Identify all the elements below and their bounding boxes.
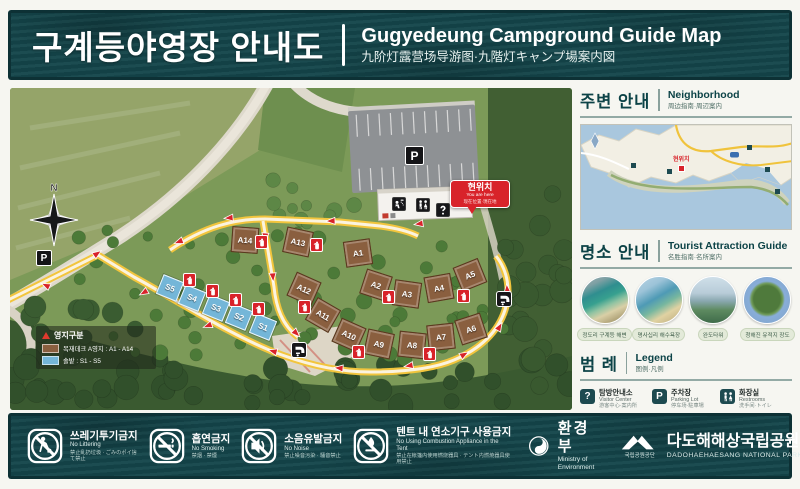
attractions-title-en: Tourist Attraction Guide xyxy=(668,241,788,253)
parking-badge: P xyxy=(36,250,52,266)
you-are-here-balloon: 현위치 You are here 现在位置·現在地 xyxy=(450,180,510,208)
fire-extinguisher-marker xyxy=(183,273,196,287)
fire-extinguisher-marker xyxy=(352,345,365,359)
attraction-photo xyxy=(635,276,683,324)
attractions-header: 명소 안내 Tourist Attraction Guide 名胜指南·名所案内 xyxy=(580,239,792,269)
site-classification-label: 영지구분 xyxy=(54,330,83,341)
color-swatch xyxy=(42,356,59,365)
ministry-name-ko: 환경부 xyxy=(558,420,605,456)
neighborhood-title-en: Neighborhood xyxy=(668,90,740,102)
fire-extinguisher-marker xyxy=(310,238,323,252)
campsite-S2: S2 xyxy=(225,303,253,331)
rule-label-ko: 텐트 내 연소기구 사용금지 xyxy=(396,426,511,439)
fire-extinguisher-marker xyxy=(206,284,219,298)
rule-label-en: No Smoking xyxy=(192,446,231,453)
legend-label-ko: 주차장 xyxy=(671,389,704,397)
no-litter-icon xyxy=(26,427,64,465)
prohibition-rules: 쓰레기투기금지No Littering禁止乱扔垃圾 · ごみのポイ捨て禁止흡연금… xyxy=(26,426,511,465)
classification-label: 솔밭 : S1 - S5 xyxy=(63,356,101,365)
rule-label-cjk: 禁止在帐篷内使用燃烧器具 · テント内燃焼器具使用禁止 xyxy=(396,453,511,465)
fire-extinguisher-marker xyxy=(382,290,395,304)
park-service-logo xyxy=(619,433,661,453)
legend-label-cjk: 停车场·駐車場 xyxy=(671,404,704,410)
no-burn-icon xyxy=(352,427,390,465)
rule-smoke: 흡연금지No Smoking禁烟 · 禁煙 xyxy=(148,427,231,465)
rule-label-en: No Littering xyxy=(70,442,138,449)
header-band: 구계등야영장 안내도 Gugyedeung Campground Guide M… xyxy=(8,10,792,80)
attraction-photo xyxy=(581,276,629,324)
rule-label-en: No Noise xyxy=(284,446,342,453)
attraction-caption: 명사십리 해수욕장 xyxy=(632,328,685,341)
ministry-of-environment: 환경부 Ministry of Environment xyxy=(527,420,605,472)
site-classification-row: 솔밭 : S1 - S5 xyxy=(42,356,150,365)
attraction-item: 명사십리 해수욕장 xyxy=(634,276,683,341)
rule-burn: 텐트 내 연소기구 사용금지No Using Combustion Applia… xyxy=(352,426,511,465)
legend-item-parking: P주차장Parking Lot停车场·駐車場 xyxy=(652,389,720,415)
rule-label-ko: 소음유발금지 xyxy=(284,433,342,446)
attraction-caption: 정도리 구계등 해변 xyxy=(577,328,631,341)
minimap-pin xyxy=(678,165,685,172)
attraction-photo xyxy=(689,276,737,324)
parking-badge: P xyxy=(405,146,424,165)
site-classification-title: 영지구분 xyxy=(42,330,150,341)
restroom-icon xyxy=(416,198,430,212)
rule-label-ko: 흡연금지 xyxy=(192,433,231,446)
campsite-S4: S4 xyxy=(178,284,206,312)
title-translations: Gugyedeung Campground Guide Map 九阶灯露营场导游… xyxy=(361,25,721,64)
rule-litter: 쓰레기투기금지No Littering禁止乱扔垃圾 · ごみのポイ捨て禁止 xyxy=(26,427,138,465)
park-office-name-en: DADOHAEHAESANG NATIONAL PARK OFFICE xyxy=(667,452,800,460)
footer-band: 쓰레기투기금지No Littering禁止乱扔垃圾 · ごみのポイ捨て禁止흡연금… xyxy=(8,413,792,479)
drinking-fountain-marker xyxy=(496,291,512,307)
shower-icon xyxy=(392,197,406,211)
color-swatch xyxy=(42,344,59,353)
info-icon xyxy=(436,203,450,217)
park-service-name: 국립공원공단 xyxy=(625,454,655,460)
legend-label-cjk: 游客中心·案内所 xyxy=(599,404,637,410)
no-noise-icon xyxy=(240,427,278,465)
rule-label-cjk: 禁止乱扔垃圾 · ごみのポイ捨て禁止 xyxy=(70,450,138,462)
info-icon: ? xyxy=(580,389,595,404)
legend-header: 범 례 Legend 图例·凡例 xyxy=(580,351,792,381)
header-divider xyxy=(626,352,628,374)
rule-label-cjk: 禁止噪音污染 · 騒音禁止 xyxy=(284,453,342,459)
site-classification-row: 목재데크 A영지 : A1 - A14 xyxy=(42,344,150,353)
campsite-A5: A5 xyxy=(453,258,488,292)
park-office-name-ko: 다도해해상국립공원사무소 xyxy=(667,432,800,451)
neighborhood-title-ko: 주변 안내 xyxy=(580,88,650,112)
classification-label: 목재데크 A영지 : A1 - A14 xyxy=(63,344,133,353)
you-are-here-cjk: 现在位置·現在地 xyxy=(451,199,509,204)
campsite-A3: A3 xyxy=(392,279,422,309)
rule-noise: 소음유발금지No Noise禁止噪音污染 · 騒音禁止 xyxy=(240,427,342,465)
campsite-A9: A9 xyxy=(363,328,395,359)
title-divider xyxy=(342,24,345,66)
legend-title-en: Legend xyxy=(635,353,672,365)
no-smoke-icon xyxy=(148,427,186,465)
fire-extinguisher-marker xyxy=(255,235,268,249)
neighborhood-minimap: 현위치 xyxy=(580,124,792,230)
attractions-title-ko: 명소 안내 xyxy=(580,239,650,263)
neighborhood-header: 주변 안내 Neighborhood 周边指南·周辺案内 xyxy=(580,88,792,118)
fire-extinguisher-marker xyxy=(457,289,470,303)
campsite-A1: A1 xyxy=(343,238,373,268)
campsite-A4: A4 xyxy=(423,273,454,303)
minimap-you-are-here: 현위치 xyxy=(673,157,690,172)
minimap-artwork xyxy=(581,125,792,230)
campsite-S1: S1 xyxy=(249,313,277,341)
attraction-item: 완도타워 xyxy=(689,276,738,341)
campground-signboard: 구계등야영장 안내도 Gugyedeung Campground Guide M… xyxy=(0,0,800,489)
page-title: 구계등야영장 안내도 xyxy=(32,21,324,69)
sidebar: 주변 안내 Neighborhood 周边指南·周辺案内 xyxy=(580,88,792,410)
campground-map: N A1A2A3A4A5A6A7A8A9A10A11A12A13A14S1S2S… xyxy=(10,88,572,410)
parking-icon: P xyxy=(652,389,667,404)
fire-extinguisher-marker xyxy=(252,302,265,316)
legend-label-ko: 화장실 xyxy=(739,389,772,397)
ministry-logo xyxy=(527,429,551,463)
rule-label-ko: 쓰레기투기금지 xyxy=(70,430,138,443)
campsite-A6: A6 xyxy=(454,312,488,345)
neighborhood-section: 주변 안내 Neighborhood 周边指南·周辺案内 xyxy=(580,88,792,230)
attraction-item: 청해진 유적지 장도 xyxy=(743,276,792,341)
fire-extinguisher-marker xyxy=(298,300,311,314)
page-title-cjk: 九阶灯露营场导游图·九階灯キャンプ場案内図 xyxy=(361,50,721,64)
attractions-title-cjk: 名胜指南·名所案内 xyxy=(668,254,788,261)
attraction-item: 정도리 구계등 해변 xyxy=(580,276,629,341)
attractions-section: 명소 안내 Tourist Attraction Guide 名胜指南·名所案内… xyxy=(580,239,792,341)
you-are-here-ko: 현위치 xyxy=(451,183,509,193)
ministry-name-en: Ministry of Environment xyxy=(558,456,605,472)
rule-label-en: No Using Combustion Appliance in the Ten… xyxy=(396,439,511,453)
header-divider xyxy=(658,240,660,262)
attraction-photo xyxy=(743,276,791,324)
restroom-icon xyxy=(720,389,735,404)
legend-title-ko: 범 례 xyxy=(580,351,618,375)
tent-icon xyxy=(42,332,50,339)
page-title-en: Gugyedeung Campground Guide Map xyxy=(361,25,721,48)
header-divider xyxy=(658,89,660,111)
park-office: 국립공원공단 다도해해상국립공원사무소 DADOHAEHAESANG NATIO… xyxy=(619,432,800,459)
legend-item-restroom: 화장실Restrooms洗手间·トイレ xyxy=(720,389,792,415)
drinking-fountain-marker xyxy=(291,342,307,358)
attraction-caption: 완도타워 xyxy=(698,328,729,341)
legend-title-cjk: 图例·凡例 xyxy=(635,366,672,373)
site-classification-box: 영지구분 목재데크 A영지 : A1 - A14솔밭 : S1 - S5 xyxy=(36,326,156,369)
neighborhood-title-cjk: 周边指南·周辺案内 xyxy=(668,103,740,110)
attraction-caption: 청해진 유적지 장도 xyxy=(740,328,794,341)
legend-label-cjk: 洗手间·トイレ xyxy=(739,404,772,410)
legend-item-info: ?탐방안내소Visitor Center游客中心·案内所 xyxy=(580,389,652,415)
fire-extinguisher-marker xyxy=(229,293,242,307)
rule-label-cjk: 禁烟 · 禁煙 xyxy=(192,453,231,459)
fire-extinguisher-marker xyxy=(423,347,436,361)
legend-label-ko: 탐방안내소 xyxy=(599,389,637,397)
